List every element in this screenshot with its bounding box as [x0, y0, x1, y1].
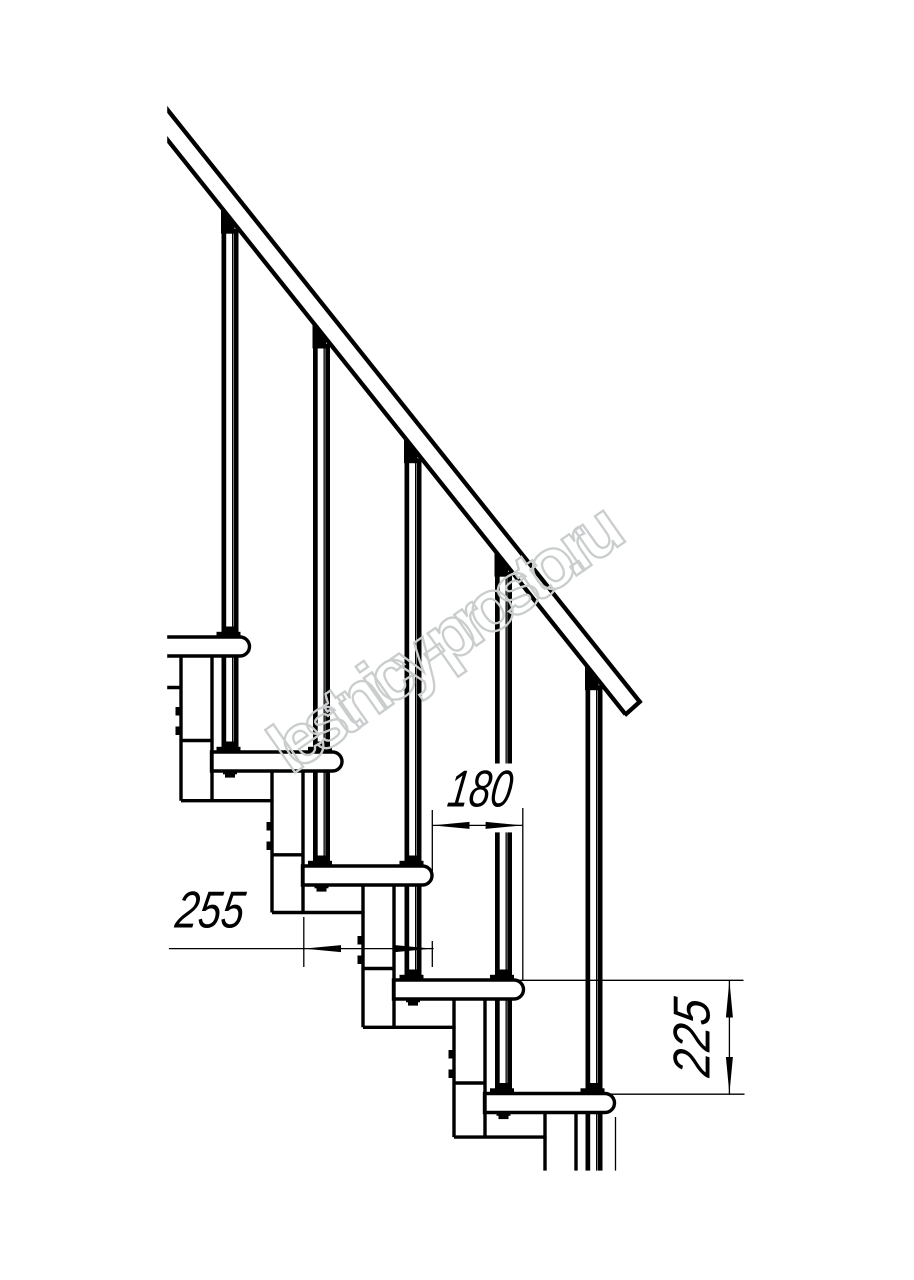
- svg-text:255: 255: [172, 882, 250, 940]
- svg-text:225: 225: [664, 994, 722, 1081]
- svg-text:180: 180: [444, 761, 516, 819]
